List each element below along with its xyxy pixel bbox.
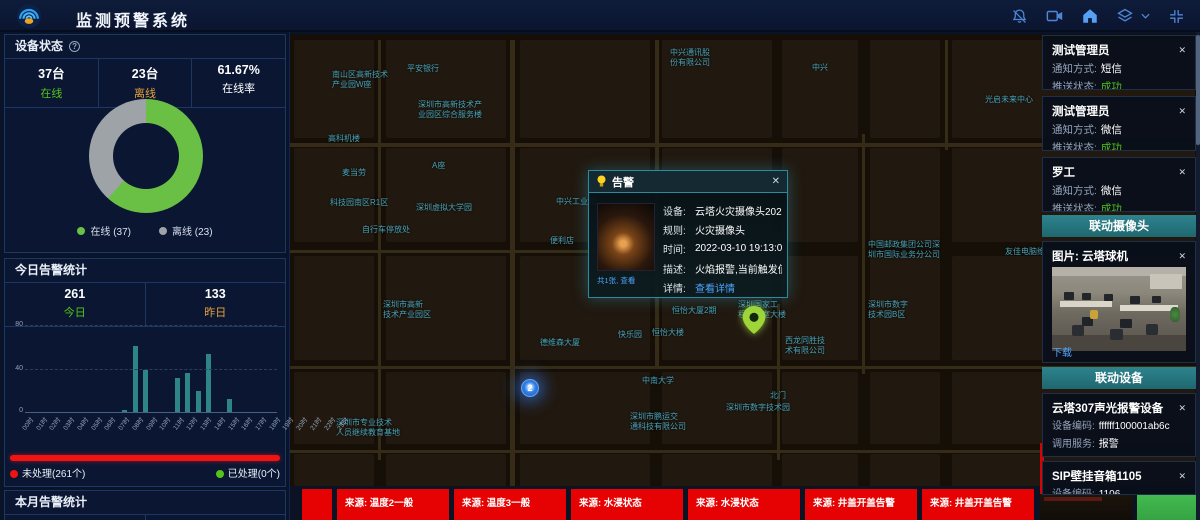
month-stat-cell: 1146	[146, 515, 286, 520]
map-place-label: 深圳虚拟大学园	[416, 203, 472, 213]
map-place-label: 深圳市数字技术园	[726, 403, 790, 413]
map-place-label: 快乐园	[618, 330, 642, 340]
map-building-block	[870, 40, 940, 138]
today-alarms-title: 今日告警统计	[15, 259, 87, 282]
device-status-donut-chart	[89, 99, 203, 213]
map-place-label: 北门	[770, 391, 786, 401]
close-icon[interactable]: ✕	[1178, 471, 1186, 482]
map-building-block	[870, 372, 940, 444]
map-place-label: 自行车停放处	[362, 225, 410, 235]
alarm-source-text: 来源: 井盖开盖告警	[922, 489, 1034, 509]
chevron-down-icon[interactable]	[1141, 11, 1151, 21]
close-icon[interactable]: ✕	[1178, 403, 1186, 414]
map-cluster-marker[interactable]: 2	[521, 379, 539, 397]
alarm-popup-header: 告警 ✕	[589, 171, 787, 193]
help-icon[interactable]: ?	[69, 41, 80, 52]
camera-snapshot-image[interactable]	[1052, 267, 1186, 351]
bar	[133, 346, 138, 412]
map-place-label: 德维森大厦	[540, 338, 580, 348]
view-details-link[interactable]: 查看详情	[695, 280, 735, 295]
x-axis-labels: 00时01时02时03时04时05时06时07时08时09时10时11时12时1…	[25, 416, 277, 438]
map-building-block	[782, 40, 858, 138]
device-card-row: 调用服务:报警	[1052, 436, 1186, 454]
video-camera-icon[interactable]	[1046, 7, 1064, 25]
alarm-detail-label: 设备:	[663, 203, 695, 218]
notification-card: 测试管理员✕通知方式:短信推送状态:成功	[1042, 35, 1196, 90]
map-building-block	[386, 372, 506, 444]
notification-method-row: 通知方式:微信	[1052, 182, 1186, 200]
alarm-detail-label: 描述:	[663, 261, 695, 276]
device-card-row: 设备编码:ffffff100001ab6c	[1052, 418, 1186, 436]
month-alarms-panel: 本月告警统计 763 1146	[4, 490, 286, 520]
page-title: 监测预警系统	[76, 7, 190, 31]
alarm-source-tile[interactable]: 来源: 水浸状态	[571, 489, 683, 520]
month-alarms-title: 本月告警统计	[15, 491, 87, 514]
bar	[143, 370, 148, 412]
alarm-detail-label: 时间:	[663, 241, 695, 256]
map-place-label: 深圳市鹏运交 通科技有限公司	[630, 412, 686, 433]
close-icon[interactable]: ✕	[1178, 106, 1186, 117]
notification-recipient: 测试管理员	[1052, 103, 1110, 119]
alarm-detail-label: 详情:	[663, 280, 695, 295]
alarm-detail-row: 规则:火灾摄像头	[663, 220, 782, 239]
device-card-row: 下发结果:成功	[1052, 454, 1186, 457]
alarm-detail-label: 规则:	[663, 222, 695, 237]
today-count-cell: 261 今日	[5, 283, 146, 326]
map-building-block	[870, 148, 940, 242]
snapshot-view-link[interactable]: 共1张, 查看	[597, 275, 635, 286]
fire-snapshot-image[interactable]	[597, 203, 655, 271]
map-place-label: 中兴通讯股 份有限公司	[670, 48, 710, 69]
linked-devices-header: 联动设备	[1042, 367, 1196, 389]
notification-method-row: 通知方式:微信	[1052, 121, 1186, 139]
map-place-label: 中南大学	[642, 376, 674, 386]
y-tick-label: 40	[9, 365, 23, 372]
bulb-icon	[596, 175, 607, 188]
alarm-progress-legend: 未处理(261个) 已处理(0个)	[10, 465, 280, 480]
alarm-popup: 告警 ✕ 共1张, 查看 设备:云塔火灾摄像头202规则:火灾摄像头时间:202…	[588, 170, 788, 298]
map-place-label: 深圳市数字 技术园B区	[868, 300, 908, 321]
bar	[206, 354, 211, 412]
alarm-detail-row: 描述:火焰报警,当前触发值为	[663, 259, 782, 278]
header-toolbar	[1011, 0, 1186, 32]
device-card-title: SIP壁挂音箱1105	[1052, 468, 1141, 484]
alarm-source-tile[interactable]: 来源: 水浸状态	[688, 489, 800, 520]
map-place-label: A座	[432, 161, 445, 171]
linked-camera-card: 图片: 云塔球机 ✕ 下	[1042, 241, 1196, 363]
close-icon[interactable]: ✕	[1178, 167, 1186, 178]
linked-device-card-list: 云塔307声光报警设备✕设备编码:ffffff100001ab6c调用服务:报警…	[1042, 393, 1196, 495]
monitoring-dashboard: 中兴通讯股 份有限公司中兴光启未来中心南山区高新技术 产业园W座平安银行深圳市高…	[0, 0, 1200, 520]
device-card-row: 设备编码:1106	[1052, 486, 1186, 495]
device-card-title: 云塔307声光报警设备	[1052, 400, 1163, 416]
alarm-detail-value: 2022-03-10 19:13:07	[695, 243, 782, 254]
bar	[196, 391, 201, 412]
map-place-label: 平安银行	[407, 64, 439, 74]
alarm-source-strip: 来源: 温度2一般来源: 温度3一般来源: 水浸状态来源: 水浸状态来源: 井盖…	[337, 489, 1034, 520]
device-status-panel: 设备状态 ? 37台 在线 23台 离线 61.67% 在线率 在线	[4, 34, 286, 253]
notification-recipient: 测试管理员	[1052, 42, 1110, 58]
map-pin-marker[interactable]	[742, 306, 766, 334]
map-place-label: 深圳市高新 技术产业园区	[383, 300, 431, 321]
map-place-label: 西龙同胜技 术有限公司	[785, 336, 825, 357]
alarm-source-tile[interactable]: 来源: 井盖开盖告警	[805, 489, 917, 520]
bar	[122, 410, 127, 412]
scrollbar-track[interactable]	[1196, 32, 1200, 520]
alarm-source-text: 来源: 水浸状态	[688, 489, 800, 509]
alarm-detail-value: 火灾摄像头	[695, 222, 745, 237]
map-place-label: 中兴	[812, 63, 828, 73]
month-stat-cell: 763	[5, 515, 146, 520]
linked-device-card: 云塔307声光报警设备✕设备编码:ffffff100001ab6c调用服务:报警…	[1042, 393, 1196, 457]
alarm-source-text: 来源: 水浸状态	[571, 489, 683, 509]
map-building-block	[782, 148, 858, 242]
map-building-block	[782, 372, 858, 444]
left-sidebar: 设备状态 ? 37台 在线 23台 离线 61.67% 在线率 在线	[0, 32, 290, 520]
close-icon[interactable]: ✕	[1178, 251, 1186, 262]
alarm-popup-title: 告警	[612, 174, 767, 190]
notification-status-row: 推送状态:成功	[1052, 200, 1186, 212]
app-logo-icon	[16, 3, 42, 29]
alarm-detail-row: 时间:2022-03-10 19:13:07	[663, 239, 782, 258]
notification-status-row: 推送状态:成功	[1052, 78, 1186, 90]
map-place-label: 中国邮政集团公司深 圳市国际业务分公司	[868, 240, 940, 261]
close-icon[interactable]: ✕	[772, 176, 780, 187]
map-place-label: 南山区高新技术 产业园W座	[332, 70, 388, 91]
bar	[175, 378, 180, 412]
map-place-label: 高科机楼	[328, 134, 360, 144]
notification-status-row: 推送状态:成功	[1052, 139, 1186, 151]
app-header: 监测预警系统	[0, 0, 1200, 32]
bell-muted-icon[interactable]	[1011, 7, 1029, 25]
y-tick-label: 80	[9, 321, 23, 328]
notification-method-row: 通知方式:短信	[1052, 60, 1186, 78]
bar	[227, 399, 232, 412]
alarm-tile-fragment[interactable]	[302, 489, 332, 520]
online-count-cell: 37台 在线	[5, 59, 99, 107]
right-panel: 测试管理员✕通知方式:短信推送状态:成功测试管理员✕通知方式:微信推送状态:成功…	[1042, 35, 1196, 520]
alarm-source-text: 来源: 温度3一般	[454, 489, 566, 509]
alarm-detail-value: 火焰报警,当前触发值为	[695, 261, 782, 276]
alarm-detail-row: 详情:查看详情	[663, 278, 782, 297]
notification-recipient: 罗工	[1052, 164, 1075, 180]
map-place-label: 恒怡大楼	[652, 328, 684, 338]
map-building-block	[386, 40, 506, 138]
alarm-detail-rows: 设备:云塔火灾摄像头202规则:火灾摄像头时间:2022-03-10 19:13…	[663, 201, 782, 297]
y-tick-label: 0	[9, 407, 23, 414]
map-place-label: 恒怡大厦2期	[672, 306, 716, 316]
map-building-block	[294, 256, 374, 360]
map-place-label: 光启未来中心	[985, 95, 1033, 105]
camera-card-title: 图片: 云塔球机	[1052, 248, 1128, 264]
device-status-title: 设备状态	[15, 35, 63, 58]
map-place-label: 科技园南区R1区	[330, 198, 388, 208]
map-building-block	[520, 372, 650, 444]
compress-icon[interactable]	[1168, 7, 1186, 25]
map-place-label: 便利店	[550, 236, 574, 246]
bar	[185, 373, 190, 412]
month-alarms-stats: 763 1146	[5, 515, 285, 520]
notification-card: 测试管理员✕通知方式:微信推送状态:成功	[1042, 96, 1196, 151]
map-building-block	[520, 40, 650, 138]
yesterday-count-cell: 133 昨日	[146, 283, 286, 326]
map-place-label: 麦当劳	[342, 168, 366, 178]
alarm-source-tile[interactable]: 来源: 井盖开盖告警	[922, 489, 1034, 520]
alarm-progress-bar	[10, 455, 280, 461]
layers-icon[interactable]	[1116, 7, 1134, 25]
alarm-detail-value: 云塔火灾摄像头202	[695, 203, 782, 218]
alarm-source-tile[interactable]: 来源: 温度3一般	[454, 489, 566, 520]
alarm-detail-row: 设备:云塔火灾摄像头202	[663, 201, 782, 220]
notification-card: 罗工✕通知方式:微信推送状态:成功	[1042, 157, 1196, 212]
alarm-source-text: 来源: 井盖开盖告警	[805, 489, 917, 509]
alarm-source-tile[interactable]: 来源: 温度2一般	[337, 489, 449, 520]
linked-device-card: SIP壁挂音箱1105✕设备编码:1106	[1042, 461, 1196, 495]
today-alarms-stats: 261 今日 133 昨日	[5, 283, 285, 327]
close-icon[interactable]: ✕	[1178, 45, 1186, 56]
scrollbar-thumb[interactable]	[1196, 35, 1200, 145]
alarm-source-text: 来源: 温度2一般	[337, 489, 449, 509]
donut-legend: 在线 (37) 离线 (23)	[5, 223, 285, 238]
map-place-label: 深圳市高新技术产 业园区综合服务楼	[418, 100, 482, 121]
linked-cameras-header: 联动摄像头	[1042, 215, 1196, 237]
hourly-alarm-bar-chart: 80 40 0	[25, 325, 277, 413]
download-link[interactable]: 下载	[1052, 344, 1072, 359]
notification-card-list: 测试管理员✕通知方式:短信推送状态:成功测试管理员✕通知方式:微信推送状态:成功…	[1042, 35, 1196, 212]
online-rate-cell: 61.67% 在线率	[192, 59, 285, 107]
today-alarms-panel: 今日告警统计 261 今日 133 昨日 80 40 0 00时01时02时0	[4, 258, 286, 487]
home-icon[interactable]	[1081, 7, 1099, 25]
